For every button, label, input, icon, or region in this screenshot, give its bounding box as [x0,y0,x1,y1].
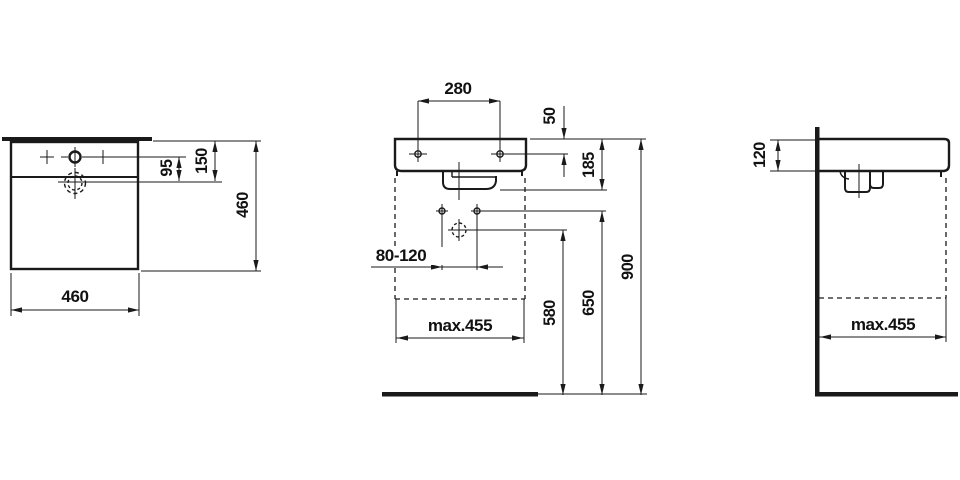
dim-label-95: 95 [158,138,176,199]
wall-edge-line [2,137,152,141]
dimension-arrowhead [560,384,565,395]
dimension-arrowhead [253,141,258,152]
dimension-arrowhead [397,335,408,340]
dimension-arrowhead [11,307,22,312]
dimension-arrowhead [599,384,604,395]
dimension-arrowhead [820,334,831,339]
dim-label-width-460: 460 [43,288,107,306]
dimension-arrowhead [599,179,604,190]
dimension-arrowhead [512,335,523,340]
dimension-arrowhead [599,139,604,150]
dimension-arrowhead [212,141,217,152]
arrowheads [11,98,946,395]
mounting-hole-icon [491,146,568,162]
drawing-linework [0,0,960,480]
dim-label-max455: max.455 [412,317,508,335]
technical-drawing: 95 150 460 460 280 50 185 80-120 max.455… [0,0,960,480]
dimension-arrowhead [561,154,566,165]
top-view [2,137,261,316]
dimension-arrowhead [176,170,181,181]
dim-label-80-120: 80-120 [353,247,449,265]
dimension-arrowhead [561,128,566,139]
dimension-arrowhead [599,211,604,222]
dim-label-280: 280 [426,80,490,98]
dimension-arrowhead [477,264,488,269]
dimension-arrowhead [176,157,181,168]
dim-label-120: 120 [751,125,769,186]
wall-line [815,127,820,393]
dim-label-650: 650 [580,273,598,334]
dimension-arrowhead [638,384,643,395]
basin-outline [819,139,949,171]
dimension-arrowhead [431,264,442,269]
clearance-dashed-outline [819,178,946,298]
dim-label-depth-460: 460 [234,175,252,236]
waste-trap-outline [443,171,496,189]
side-view [770,127,958,397]
dimension-arrowhead [489,98,500,103]
dim-label-max455-side: max.455 [835,316,931,334]
dimension-arrowhead [253,260,258,271]
dimension-arrowhead [418,98,429,103]
dim-label-900: 900 [619,237,637,298]
fixing-bolt-icon [436,204,448,218]
mounting-hole-icon [409,146,427,162]
dimension-arrowhead [775,160,780,171]
wall-outlet-icon [448,219,567,241]
dim-label-50: 50 [541,86,559,147]
dimension-arrowhead [638,139,643,150]
fixing-bolt-icon [471,204,483,218]
floor-line [382,392,538,397]
dim-label-150: 150 [193,131,211,192]
clearance-dashed-outline [395,178,525,299]
dimension-arrowhead [560,230,565,241]
dim-label-185: 185 [580,135,598,196]
dim-label-580: 580 [541,283,559,344]
dimension-arrowhead [212,170,217,181]
dimension-arrowhead [775,140,780,151]
floor-line [815,392,958,397]
dimension-arrowhead [128,307,139,312]
waste-trap-outline [840,164,883,198]
dimension-arrowhead [935,334,946,339]
